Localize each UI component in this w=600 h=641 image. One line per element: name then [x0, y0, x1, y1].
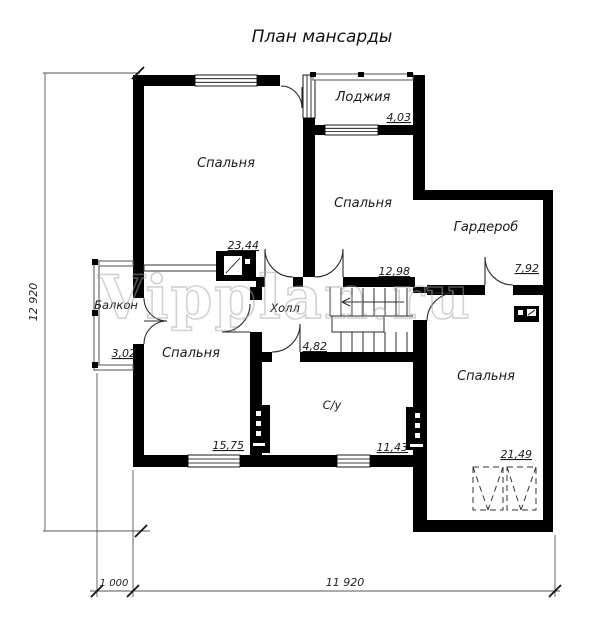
- room-label-bedroom-middle: Спальня: [334, 196, 392, 211]
- window-top: [195, 75, 257, 86]
- room-area-wardrobe: 7,92: [515, 262, 540, 275]
- skylight-windows: [473, 467, 536, 510]
- vent-block-bedroom-right: [514, 306, 539, 322]
- room-area-loggia: 4,03: [387, 111, 412, 124]
- window-loggia-sill: [325, 125, 378, 135]
- room-area-bathroom: 11,43: [377, 441, 409, 454]
- room-area-balcony: 3,02: [112, 347, 137, 360]
- room-label-bathroom: С/у: [323, 398, 342, 412]
- loggia-railing: [310, 72, 413, 80]
- floor-plan-page: План мансарды: [0, 0, 600, 641]
- window-bathroom: [337, 455, 370, 467]
- dimension-width: 11 920: [326, 576, 365, 589]
- room-label-bedroom-bottom-left: Спальня: [162, 346, 220, 361]
- room-label-wardrobe: Гардероб: [454, 220, 519, 235]
- dimension-height: 12 920: [27, 283, 40, 322]
- room-area-bedroom-bottom-right: 21,49: [501, 448, 533, 461]
- room-area-hall: 4,82: [303, 340, 328, 353]
- room-label-loggia: Лоджия: [335, 90, 391, 105]
- room-area-bedroom-top-left: 23,44: [228, 239, 260, 252]
- room-area-bedroom-bottom-left: 15,75: [213, 439, 245, 452]
- watermark-text: Vipplan.ru: [97, 263, 472, 333]
- plan-title: План мансарды: [252, 27, 393, 47]
- window-loggia-glazing: [303, 75, 315, 118]
- window-bottom-left: [188, 455, 240, 467]
- dimension-offset-left: 1 000: [100, 578, 129, 589]
- floor-plan-drawing: План мансарды: [0, 0, 600, 641]
- vent-block-bathroom-west: [250, 405, 270, 453]
- room-label-bedroom-bottom-right: Спальня: [457, 369, 515, 384]
- vent-block-bathroom-east: [406, 407, 427, 450]
- room-label-bedroom-top-left: Спальня: [197, 156, 255, 171]
